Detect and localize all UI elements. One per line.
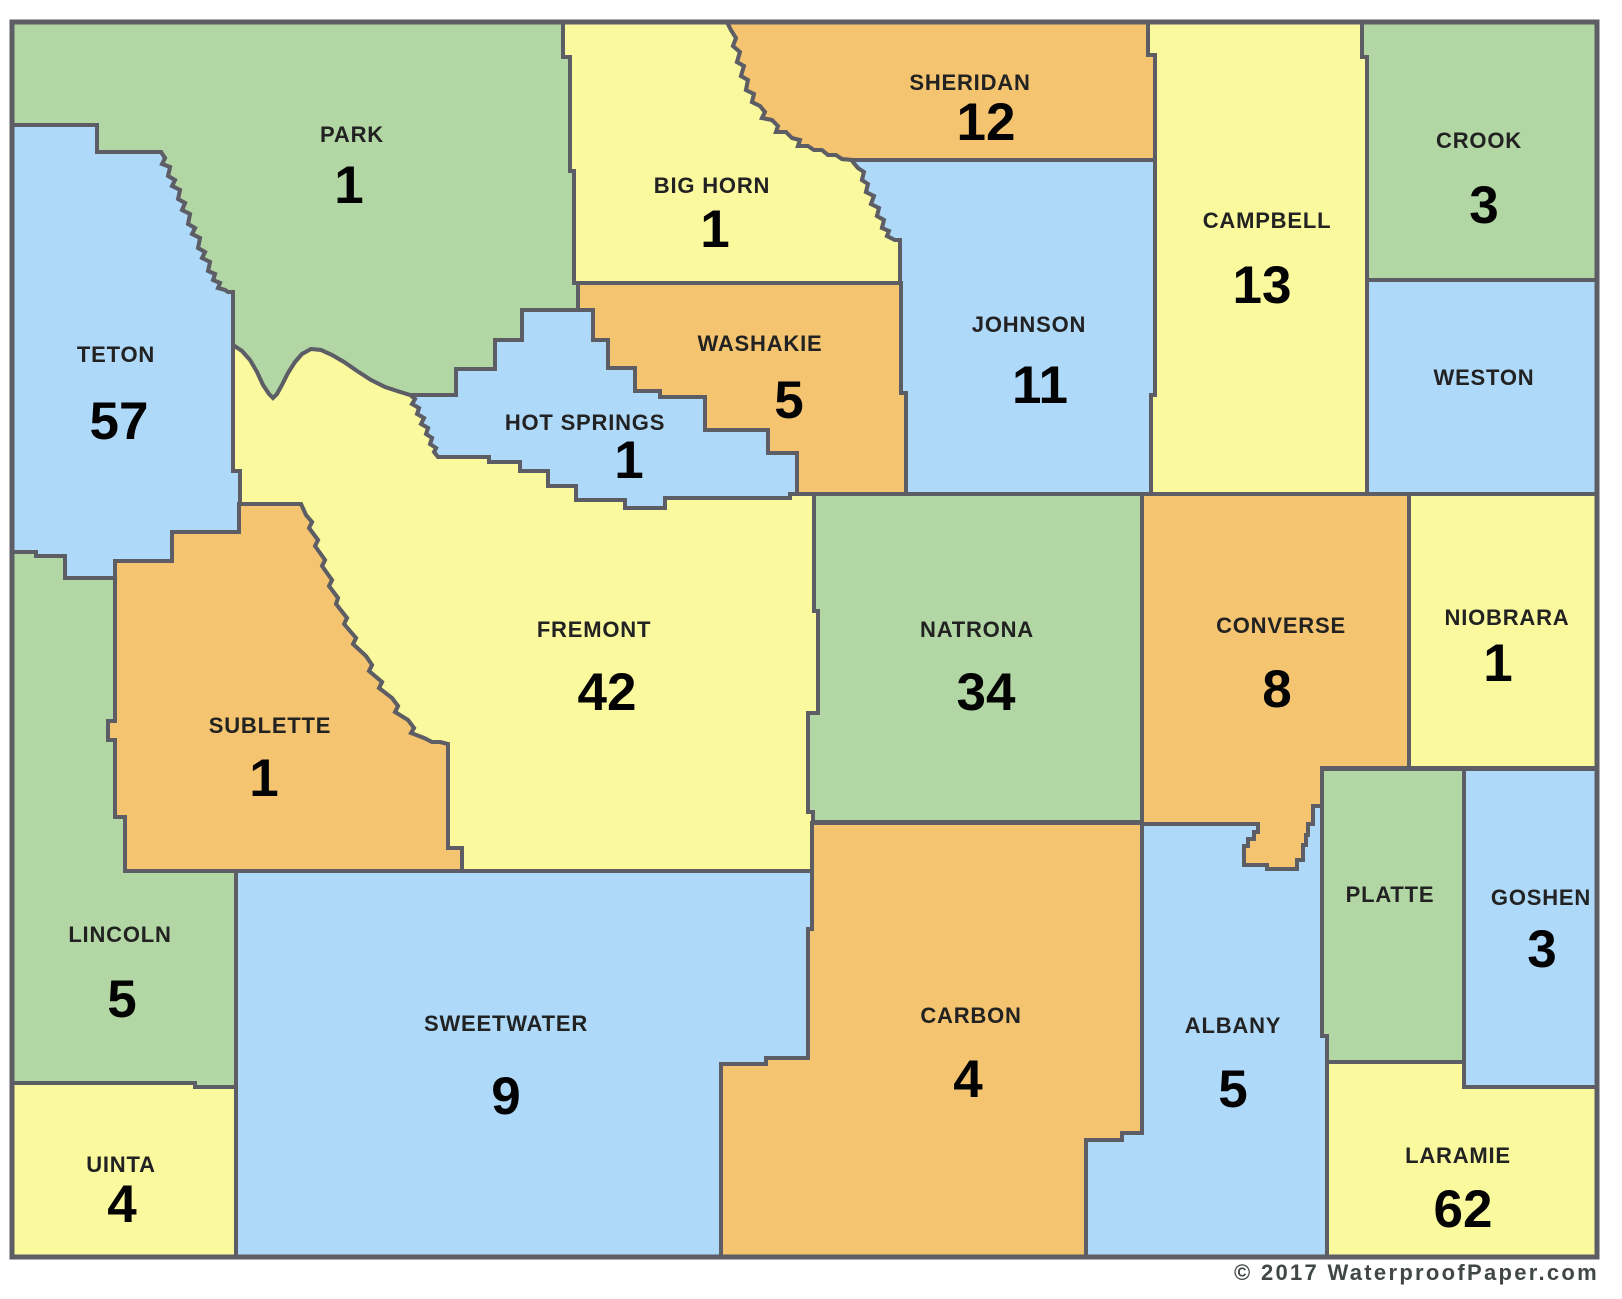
svg-text:FREMONT: FREMONT	[537, 617, 651, 642]
svg-text:CONVERSE: CONVERSE	[1216, 613, 1346, 638]
svg-text:1: 1	[614, 431, 643, 490]
svg-text:9: 9	[491, 1067, 520, 1126]
svg-text:1: 1	[249, 749, 278, 808]
svg-text:LINCOLN: LINCOLN	[68, 922, 171, 947]
svg-text:11: 11	[1012, 356, 1068, 415]
svg-text:BIG HORN: BIG HORN	[654, 173, 770, 198]
svg-text:12: 12	[957, 93, 1016, 152]
svg-text:42: 42	[578, 663, 637, 722]
svg-text:34: 34	[957, 663, 1016, 722]
svg-text:8: 8	[1262, 660, 1291, 719]
svg-text:WASHAKIE: WASHAKIE	[698, 331, 823, 356]
svg-text:WESTON: WESTON	[1434, 365, 1535, 390]
svg-text:PARK: PARK	[320, 122, 384, 147]
svg-text:TETON: TETON	[77, 342, 155, 367]
svg-text:NIOBRARA: NIOBRARA	[1445, 605, 1570, 630]
svg-text:1: 1	[700, 200, 729, 259]
svg-text:NATRONA: NATRONA	[920, 617, 1034, 642]
svg-text:© 2017 WaterproofPaper.com: © 2017 WaterproofPaper.com	[1234, 1260, 1599, 1285]
svg-text:SHERIDAN: SHERIDAN	[909, 70, 1030, 95]
svg-text:GOSHEN: GOSHEN	[1491, 885, 1591, 910]
svg-text:CAMPBELL: CAMPBELL	[1203, 208, 1332, 233]
svg-text:13: 13	[1233, 256, 1292, 315]
svg-text:4: 4	[953, 1050, 983, 1109]
svg-text:4: 4	[107, 1175, 137, 1234]
svg-text:ALBANY: ALBANY	[1185, 1013, 1281, 1038]
svg-text:SWEETWATER: SWEETWATER	[424, 1011, 588, 1036]
svg-text:5: 5	[107, 970, 136, 1029]
svg-text:3: 3	[1527, 920, 1556, 979]
svg-text:CARBON: CARBON	[920, 1003, 1021, 1028]
svg-text:5: 5	[774, 371, 803, 430]
svg-text:SUBLETTE: SUBLETTE	[209, 713, 332, 738]
svg-text:PLATTE: PLATTE	[1346, 882, 1435, 907]
svg-text:UINTA: UINTA	[86, 1152, 156, 1177]
svg-text:JOHNSON: JOHNSON	[972, 312, 1086, 337]
svg-text:CROOK: CROOK	[1436, 128, 1522, 153]
svg-text:1: 1	[1483, 634, 1512, 693]
svg-text:LARAMIE: LARAMIE	[1405, 1143, 1511, 1168]
svg-text:3: 3	[1469, 176, 1498, 235]
svg-text:57: 57	[90, 392, 149, 451]
svg-text:62: 62	[1434, 1180, 1493, 1239]
svg-text:1: 1	[334, 156, 363, 215]
svg-text:5: 5	[1218, 1060, 1247, 1119]
